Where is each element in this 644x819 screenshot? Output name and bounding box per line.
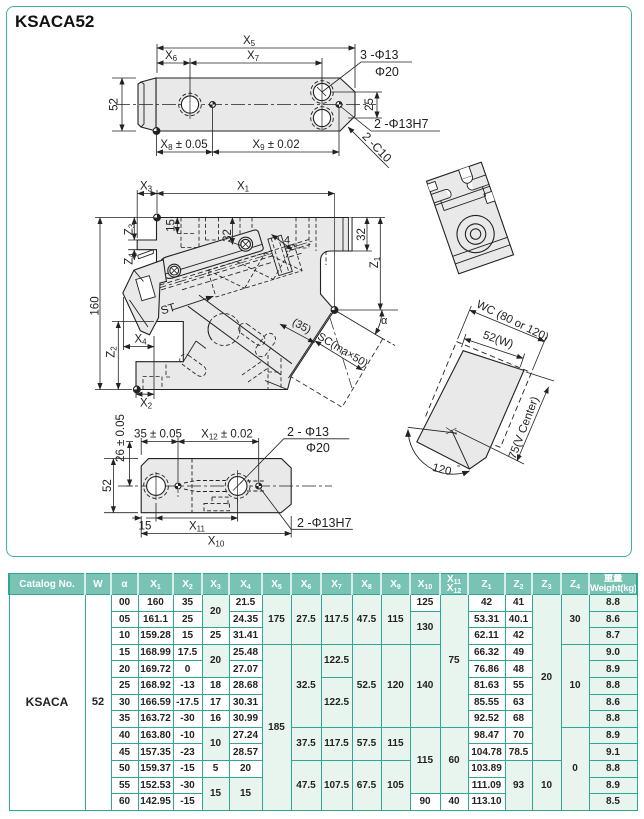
svg-text:Z3: Z3 bbox=[124, 223, 137, 235]
svg-text:160: 160 bbox=[90, 296, 102, 315]
svg-text:Φ20: Φ20 bbox=[306, 441, 330, 455]
svg-text:X9 ± 0.02: X9 ± 0.02 bbox=[252, 139, 299, 152]
svg-text:52: 52 bbox=[102, 479, 114, 492]
svg-text:3 -Φ13: 3 -Φ13 bbox=[360, 48, 399, 62]
svg-text:SC(ma×50): SC(ma×50) bbox=[315, 331, 370, 370]
svg-text:26 ± 0.05: 26 ± 0.05 bbox=[115, 414, 127, 462]
svg-text:120: 120 bbox=[431, 462, 453, 478]
svg-text:2 -C10: 2 -C10 bbox=[359, 129, 394, 165]
svg-text:4: 4 bbox=[284, 235, 290, 247]
svg-text:15: 15 bbox=[166, 219, 178, 232]
svg-text:75(V Center): 75(V Center) bbox=[507, 395, 542, 461]
svg-text:52(W): 52(W) bbox=[481, 329, 515, 351]
svg-text:α: α bbox=[381, 315, 388, 327]
svg-text:2 -Φ13H7: 2 -Φ13H7 bbox=[374, 117, 428, 131]
svg-text:35 ± 0.05: 35 ± 0.05 bbox=[134, 429, 182, 441]
svg-text:X10: X10 bbox=[208, 536, 225, 549]
svg-text:X12 ± 0.02: X12 ± 0.02 bbox=[201, 429, 253, 442]
svg-text:32: 32 bbox=[222, 229, 234, 242]
svg-text:2 - Φ13: 2 - Φ13 bbox=[287, 425, 329, 439]
svg-text:Φ20: Φ20 bbox=[375, 65, 399, 79]
svg-text:32: 32 bbox=[356, 228, 368, 241]
svg-text:X7: X7 bbox=[247, 50, 260, 63]
svg-text:Z2: Z2 bbox=[106, 346, 119, 358]
svg-text:X3: X3 bbox=[140, 181, 153, 194]
svg-text:X8 ± 0.05: X8 ± 0.05 bbox=[160, 139, 207, 152]
svg-text:X6: X6 bbox=[165, 50, 178, 63]
svg-text:X4: X4 bbox=[134, 334, 147, 347]
svg-text:X11: X11 bbox=[189, 521, 206, 534]
svg-text:X1: X1 bbox=[237, 181, 250, 194]
svg-text:Z4: Z4 bbox=[124, 253, 137, 265]
svg-text:X5: X5 bbox=[243, 35, 256, 48]
svg-text:25: 25 bbox=[364, 98, 376, 111]
svg-text:52: 52 bbox=[109, 98, 121, 111]
svg-text:X2: X2 bbox=[140, 398, 153, 411]
svg-text:15: 15 bbox=[139, 521, 152, 533]
svg-text:Z1: Z1 bbox=[369, 256, 382, 268]
svg-text:2 -Φ13H7: 2 -Φ13H7 bbox=[297, 516, 351, 530]
svg-text:°: ° bbox=[456, 463, 461, 473]
